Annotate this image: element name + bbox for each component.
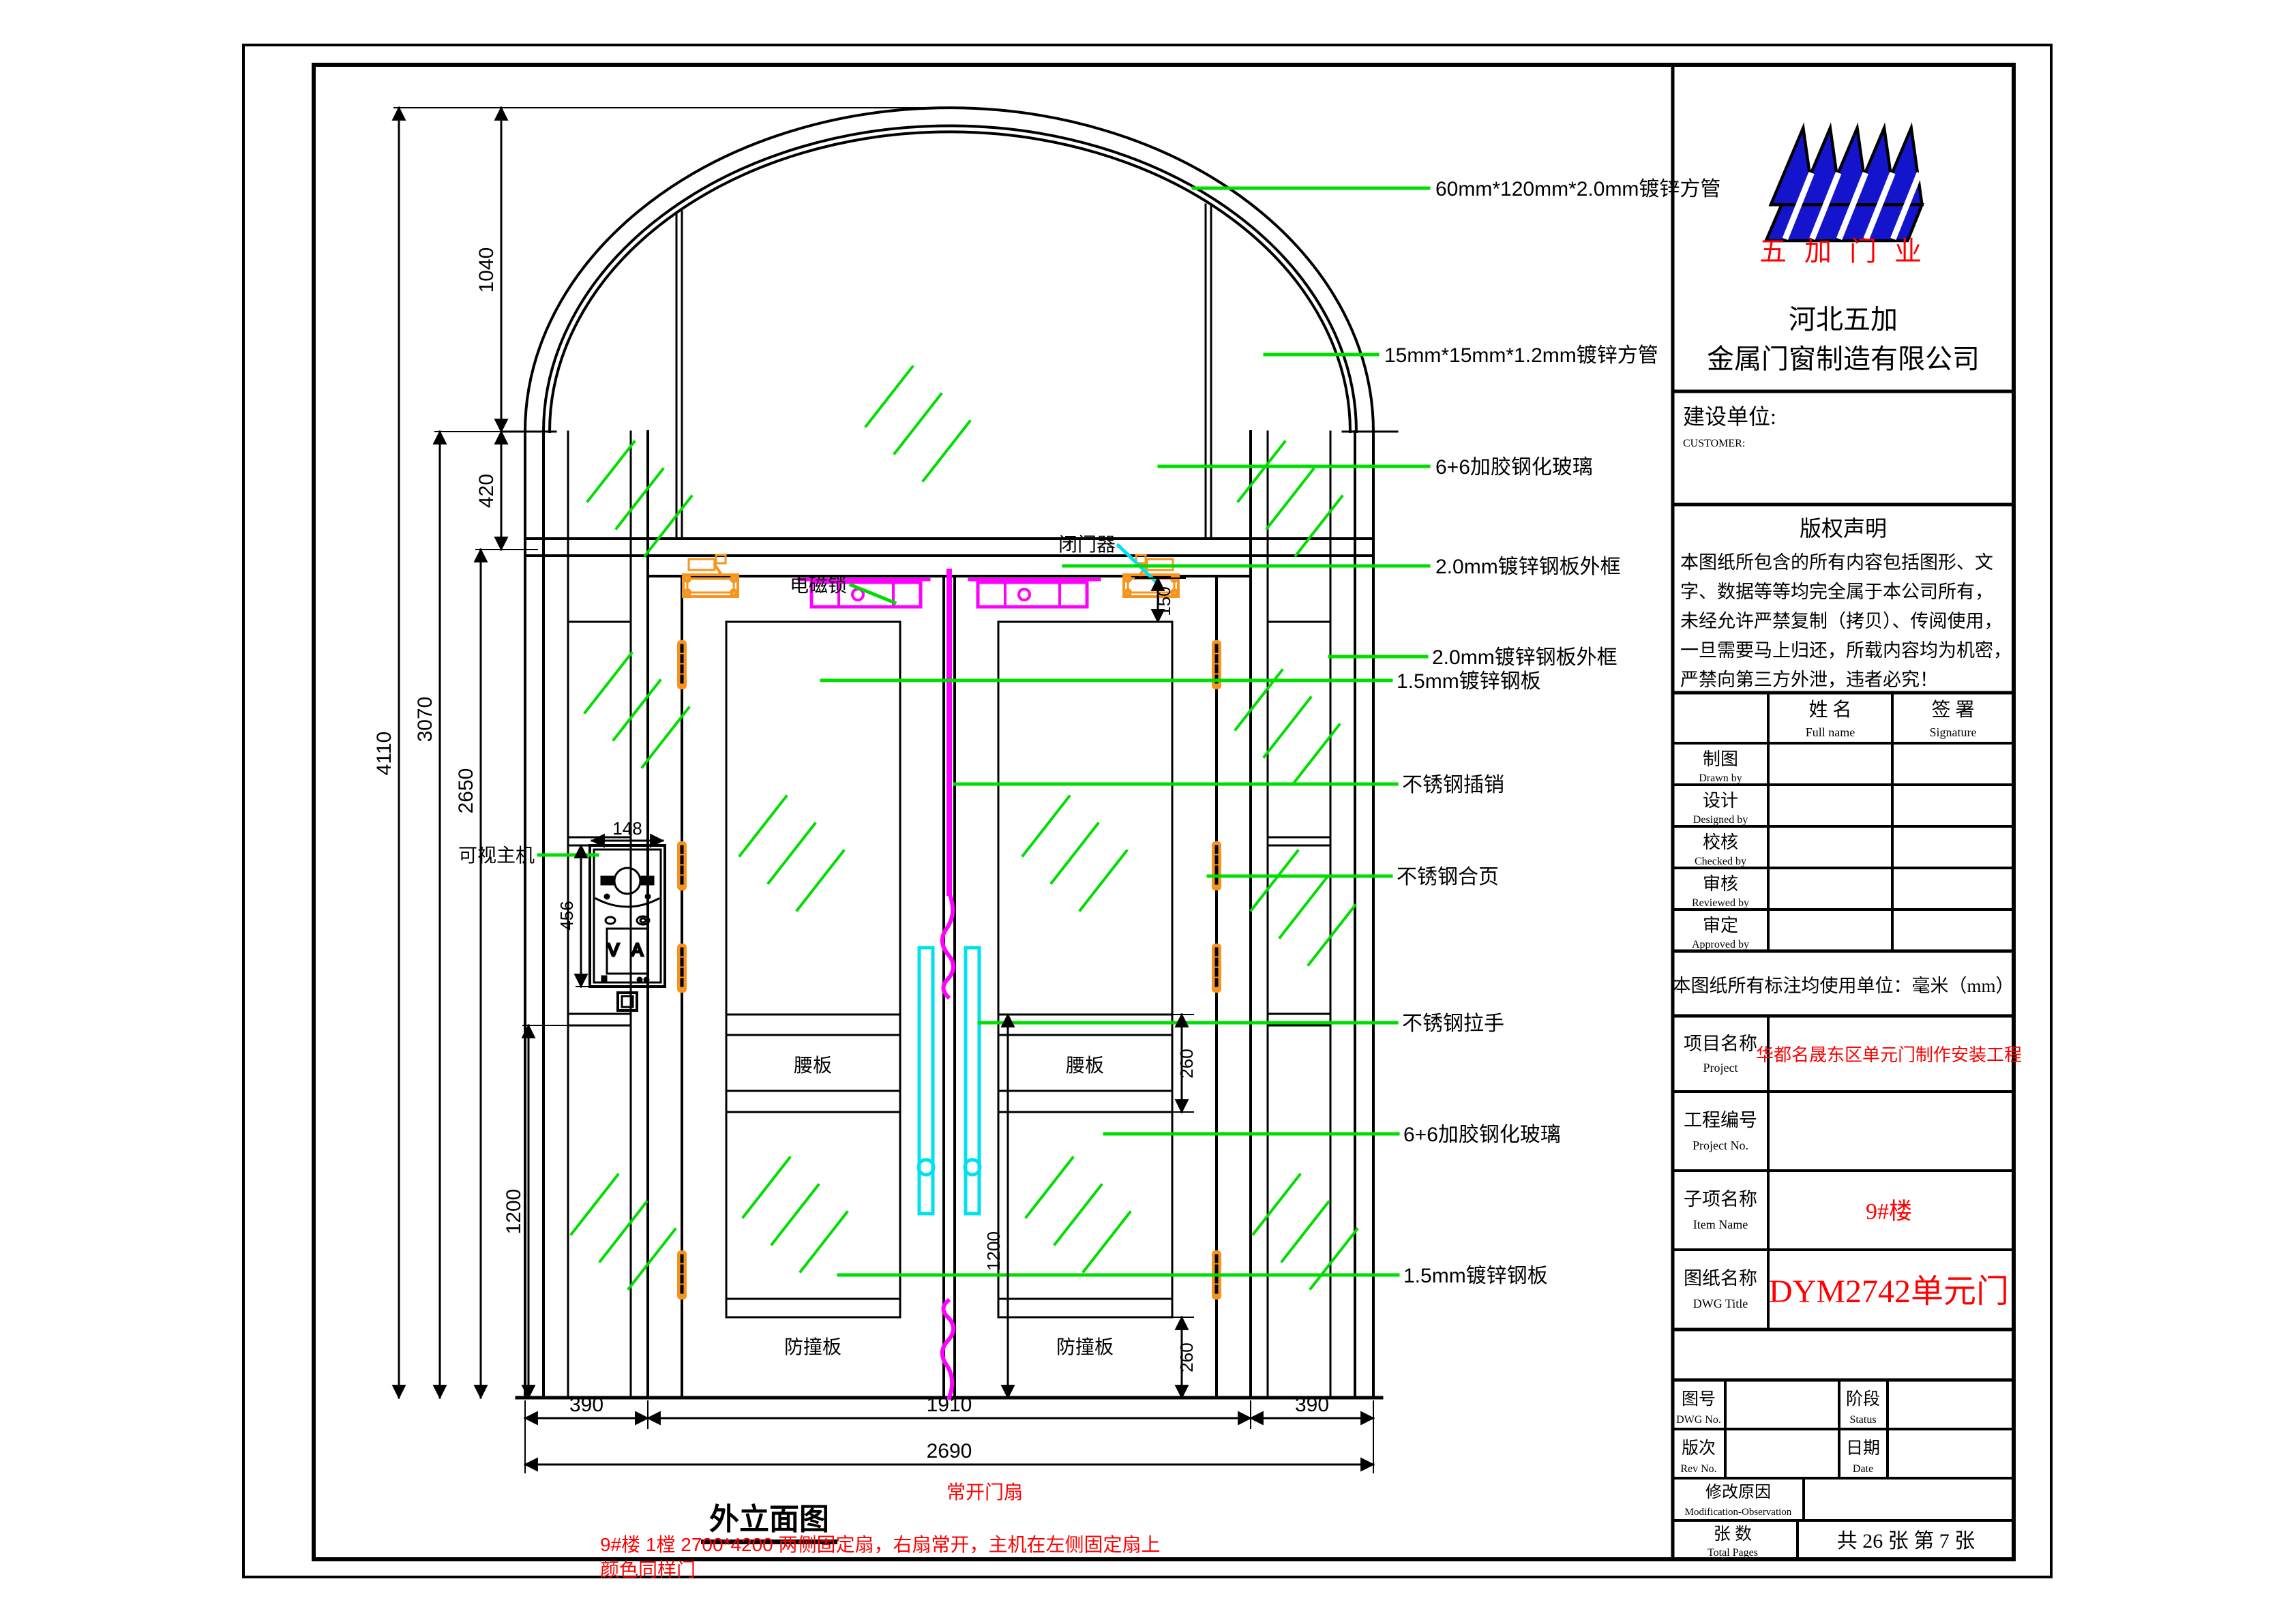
dim-4110: 4110 bbox=[373, 732, 396, 776]
dim-1200-left: 1200 bbox=[503, 1189, 525, 1235]
pages-value: 共 26 张 第 7 张 bbox=[1837, 1530, 1976, 1552]
project-label-en: Project bbox=[1703, 1061, 1738, 1075]
date-cn: 日期 bbox=[1846, 1439, 1880, 1458]
annotation-steel-sheet-1: 1.5mm镀锌钢板 bbox=[1397, 670, 1541, 693]
dwg-no-en: DWG No. bbox=[1676, 1414, 1721, 1426]
customer-label: 建设单位: bbox=[1683, 404, 1776, 429]
customer-label-en: CUSTOMER: bbox=[1683, 438, 1745, 449]
spec-note-line2: 颜色同样门 bbox=[600, 1559, 696, 1580]
project-no-label-en: Project No. bbox=[1693, 1139, 1748, 1152]
dim-1910: 1910 bbox=[927, 1394, 972, 1416]
col-name-en: Full name bbox=[1806, 725, 1855, 739]
magnetic-lock-right bbox=[970, 580, 1099, 607]
dim-260-bottom: 260 bbox=[1176, 1342, 1197, 1372]
door-closer-left bbox=[683, 555, 738, 597]
logo-brand-text: 五 加 门 业 bbox=[1759, 236, 1927, 267]
mod-en: Modification-Observation bbox=[1685, 1507, 1792, 1518]
project-value: 华都名晟东区单元门制作安装工程 bbox=[1756, 1045, 2022, 1065]
units-note: 本图纸所有标注均使用单位：毫米（mm） bbox=[1672, 976, 2014, 996]
rev-cn: 版次 bbox=[1682, 1439, 1716, 1458]
dim-390-left: 390 bbox=[569, 1394, 603, 1416]
company-logo bbox=[1766, 128, 1922, 241]
dim-456: 456 bbox=[556, 901, 577, 930]
annotation-glass-door: 6+6加胶钢化玻璃 bbox=[1403, 1124, 1561, 1146]
outer-border bbox=[243, 45, 2051, 1577]
annotation-glass-top: 6+6加胶钢化玻璃 bbox=[1435, 456, 1593, 479]
pull-handle-right bbox=[965, 948, 980, 1214]
annotation-hinge: 不锈钢合页 bbox=[1397, 866, 1499, 888]
row-designed-en: Designed by bbox=[1693, 814, 1748, 826]
dim-420: 420 bbox=[475, 474, 498, 508]
row-checked-en: Checked by bbox=[1695, 856, 1746, 867]
maglock-label: 电磁锁 bbox=[790, 575, 847, 596]
dim-150: 150 bbox=[1154, 586, 1174, 616]
signature-table: 姓 名 Full name 签 署 Signature 制图 Drawn by … bbox=[1692, 699, 1976, 950]
dim-260-top: 260 bbox=[1176, 1049, 1197, 1078]
status-cn: 阶段 bbox=[1846, 1390, 1880, 1409]
pages-en: Total Pages bbox=[1708, 1547, 1758, 1559]
dim-1200-door: 1200 bbox=[983, 1231, 1004, 1271]
dwg-label-cn: 图纸名称 bbox=[1684, 1268, 1757, 1289]
view-title: 外立面图 bbox=[709, 1503, 829, 1536]
col-sign-cn: 签 署 bbox=[1931, 699, 1974, 721]
dwg-no-cn: 图号 bbox=[1682, 1390, 1716, 1409]
item-label-en: Item Name bbox=[1693, 1218, 1748, 1231]
title-block: 五 加 门 业 河北五加 金属门窗制造有限公司 建设单位: CUSTOMER: … bbox=[1672, 65, 2022, 1559]
row-checked-cn: 校核 bbox=[1703, 832, 1738, 852]
intercom-screen-text: V A bbox=[608, 940, 647, 960]
dim-2690: 2690 bbox=[927, 1440, 972, 1462]
annotation-sq-tube-15: 15mm*15mm*1.2mm镀锌方管 bbox=[1384, 344, 1658, 367]
spec-note-line1: 9#楼 1樘 2700*4200 两侧固定扇，右扇常开，主机在左侧固定扇上 bbox=[600, 1534, 1161, 1555]
project-no-label-cn: 工程编号 bbox=[1684, 1110, 1757, 1130]
dim-148: 148 bbox=[612, 818, 642, 839]
row-approved-en: Approved by bbox=[1692, 939, 1749, 950]
item-value: 9#楼 bbox=[1866, 1199, 1912, 1225]
annotation-steel-sheet-2: 1.5mm镀锌钢板 bbox=[1403, 1265, 1548, 1287]
drawing-sheet: V A 腰板 腰板 防撞板 防撞板 闭门器 电磁锁 可视主机 bbox=[0, 0, 2296, 1622]
company-name-line1: 河北五加 bbox=[1789, 304, 1898, 335]
bump-panel-label-right: 防撞板 bbox=[1056, 1336, 1114, 1357]
title-block-grid bbox=[1673, 65, 2014, 1559]
copyright-line: 未经允许严禁复制（拷贝）、传阅使用， bbox=[1680, 611, 2003, 631]
annotation-steel-frame-2: 2.0mm镀锌钢板外框 bbox=[1432, 646, 1617, 669]
logo-peaks bbox=[1771, 128, 1922, 205]
copyright-line: 一旦需要马上归还，所载内容均为机密， bbox=[1680, 640, 2012, 661]
door-elevation: V A 腰板 腰板 防撞板 防撞板 闭门器 电磁锁 可视主机 bbox=[373, 108, 1720, 1580]
dimension-chain-left bbox=[394, 108, 955, 1398]
status-en: Status bbox=[1849, 1414, 1876, 1426]
rev-en: Rev No. bbox=[1680, 1463, 1716, 1475]
dim-1040: 1040 bbox=[475, 247, 498, 293]
annotation-sq-tube-60: 60mm*120mm*2.0mm镀锌方管 bbox=[1435, 178, 1720, 200]
annotation-handle: 不锈钢拉手 bbox=[1402, 1012, 1504, 1035]
copyright-title: 版权声明 bbox=[1800, 516, 1887, 541]
company-name-line2: 金属门窗制造有限公司 bbox=[1707, 344, 1980, 374]
pull-handle-left bbox=[919, 948, 934, 1214]
bump-panel-label-left: 防撞板 bbox=[784, 1336, 841, 1357]
closer-label: 闭门器 bbox=[1058, 534, 1116, 555]
dim-3070: 3070 bbox=[414, 697, 436, 742]
row-reviewed-en: Reviewed by bbox=[1692, 897, 1749, 909]
row-approved-cn: 审定 bbox=[1703, 916, 1738, 935]
copyright-body: 本图纸所包含的所有内容包括图形、文 字、数据等等均完全属于本公司所有， 未经允许… bbox=[1680, 552, 2012, 690]
admin-rows: 图号 DWG No. 阶段 Status 版次 Rev No. 日期 Date … bbox=[1676, 1390, 1975, 1559]
dim-2650: 2650 bbox=[455, 768, 477, 814]
dwg-value: DYM2742单元门 bbox=[1769, 1274, 2009, 1310]
arch-frame bbox=[525, 108, 1373, 539]
item-label-cn: 子项名称 bbox=[1684, 1189, 1757, 1210]
mod-cn: 修改原因 bbox=[1705, 1483, 1771, 1501]
dwg-label-en: DWG Title bbox=[1693, 1297, 1748, 1310]
copyright-line: 本图纸所包含的所有内容包括图形、文 bbox=[1680, 552, 1993, 573]
material-annotation-texts: 60mm*120mm*2.0mm镀锌方管 15mm*15mm*1.2mm镀锌方管… bbox=[1384, 178, 1720, 1287]
copyright-line: 字、数据等等均完全属于本公司所有， bbox=[1680, 582, 1993, 602]
waist-panel-label-left: 腰板 bbox=[794, 1055, 832, 1076]
side-panel-right bbox=[1268, 622, 1330, 1025]
cad-canvas: V A 腰板 腰板 防撞板 防撞板 闭门器 电磁锁 可视主机 bbox=[0, 0, 2296, 1622]
project-label-cn: 项目名称 bbox=[1684, 1034, 1757, 1054]
intercom-unit: V A bbox=[590, 845, 665, 1010]
col-name-cn: 姓 名 bbox=[1808, 699, 1851, 721]
waist-panel-label-right: 腰板 bbox=[1066, 1055, 1104, 1076]
row-designed-cn: 设计 bbox=[1703, 791, 1738, 811]
copyright-line: 严禁向第三方外泄，违者必究！ bbox=[1680, 670, 1938, 690]
annotation-bolt: 不锈钢插销 bbox=[1402, 774, 1504, 796]
leaf-note: 常开门扇 bbox=[946, 1482, 1023, 1503]
date-en: Date bbox=[1853, 1463, 1873, 1475]
pages-cn: 张 数 bbox=[1714, 1525, 1752, 1544]
row-reviewed-cn: 审核 bbox=[1703, 874, 1738, 894]
row-drawn-cn: 制图 bbox=[1703, 749, 1738, 769]
annotation-steel-frame-1: 2.0mm镀锌钢板外框 bbox=[1435, 556, 1621, 578]
intercom-label: 可视主机 bbox=[458, 845, 535, 866]
dim-390-right: 390 bbox=[1295, 1394, 1329, 1416]
col-sign-en: Signature bbox=[1930, 725, 1977, 739]
row-drawn-en: Drawn by bbox=[1699, 772, 1742, 784]
